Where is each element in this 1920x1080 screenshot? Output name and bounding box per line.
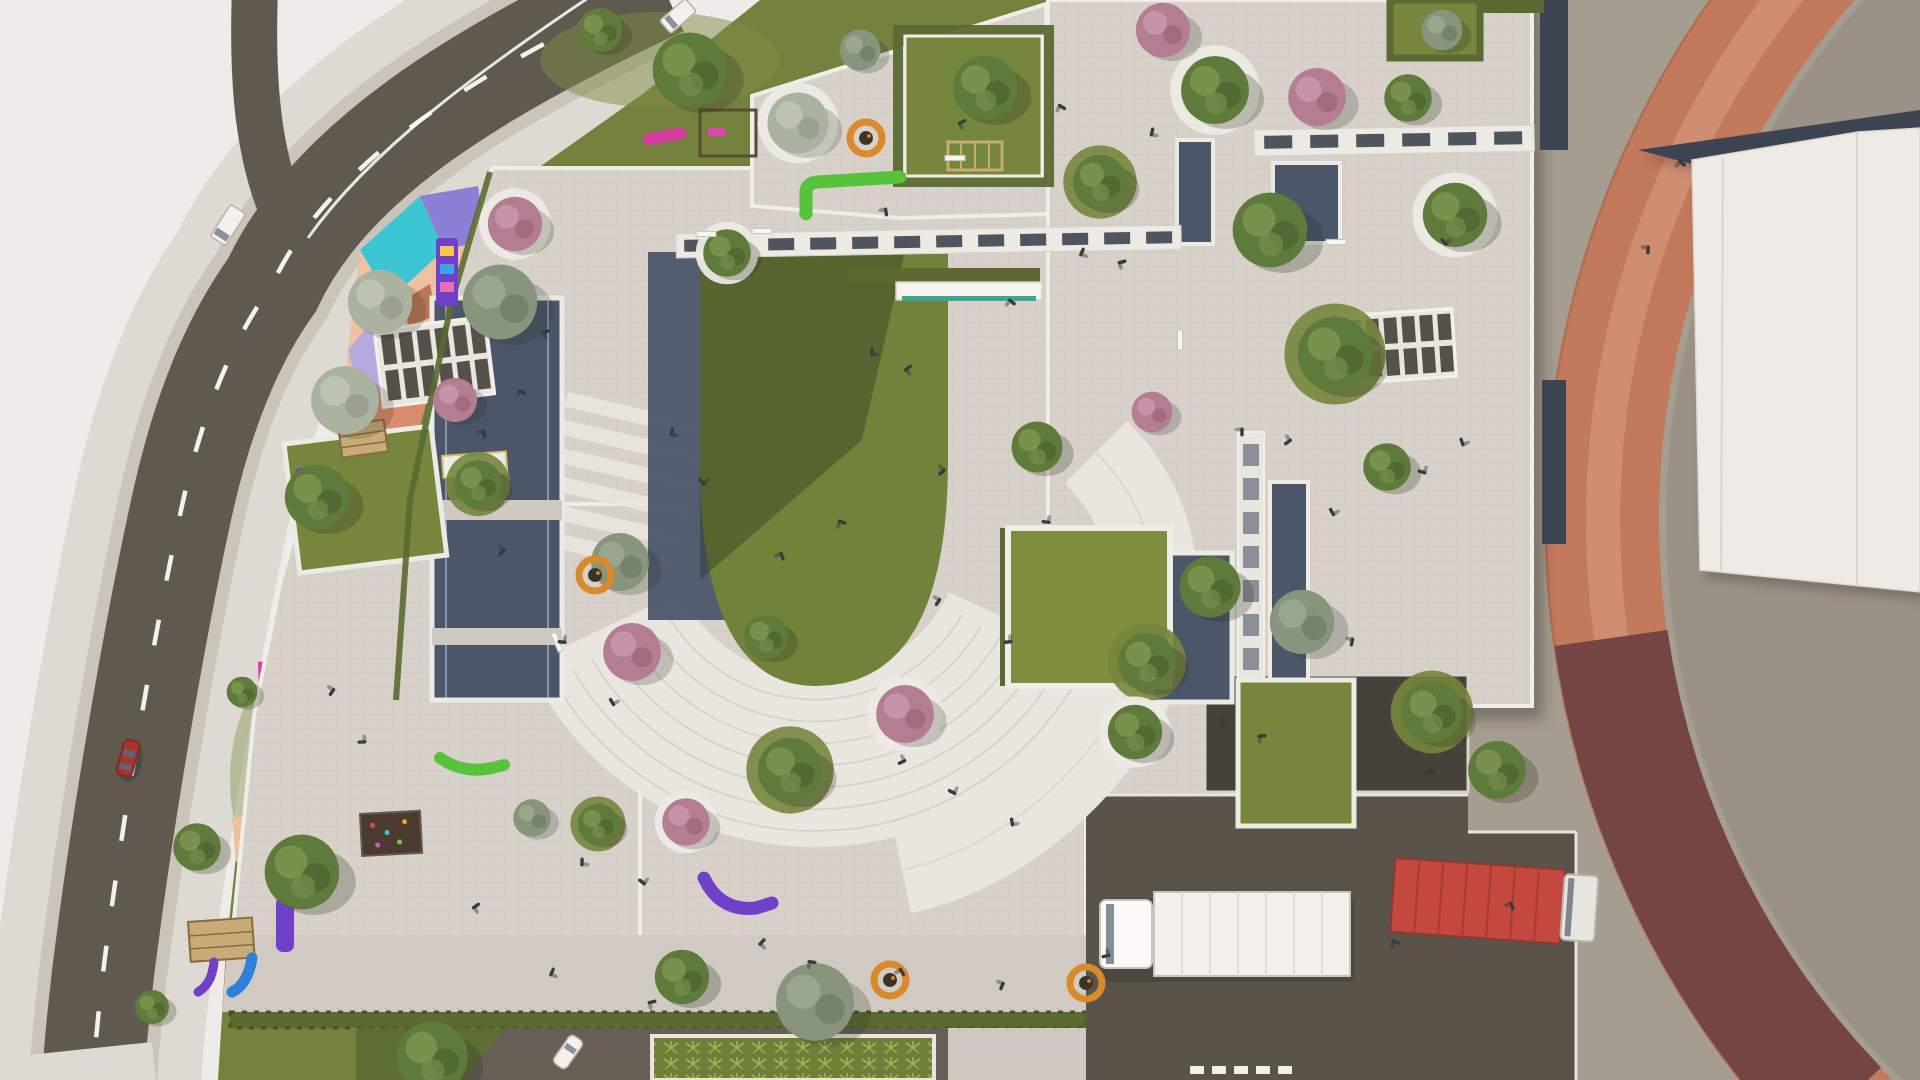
bench (696, 231, 716, 236)
site-plan-svg (0, 0, 1920, 1080)
climbing-tower (436, 238, 458, 306)
white-box-truck (1100, 892, 1354, 982)
play-mat (360, 811, 422, 856)
skylight-ladder-row-east (1254, 125, 1534, 156)
white-building-roof (1692, 128, 1920, 592)
east-facade-strip (1540, 0, 1568, 150)
truck-trailer (1154, 892, 1350, 976)
bench (752, 228, 772, 233)
bench (1326, 239, 1346, 244)
window-facade-strip (1238, 432, 1264, 700)
south-hedge (230, 1012, 1086, 1028)
palm-planter-bed (652, 1036, 934, 1080)
aerial-site-render (0, 0, 1920, 1080)
bench (945, 155, 965, 160)
green-roof-southeast (1238, 680, 1354, 826)
east-facade-strip-2 (1542, 380, 1566, 544)
bench (1177, 330, 1182, 350)
